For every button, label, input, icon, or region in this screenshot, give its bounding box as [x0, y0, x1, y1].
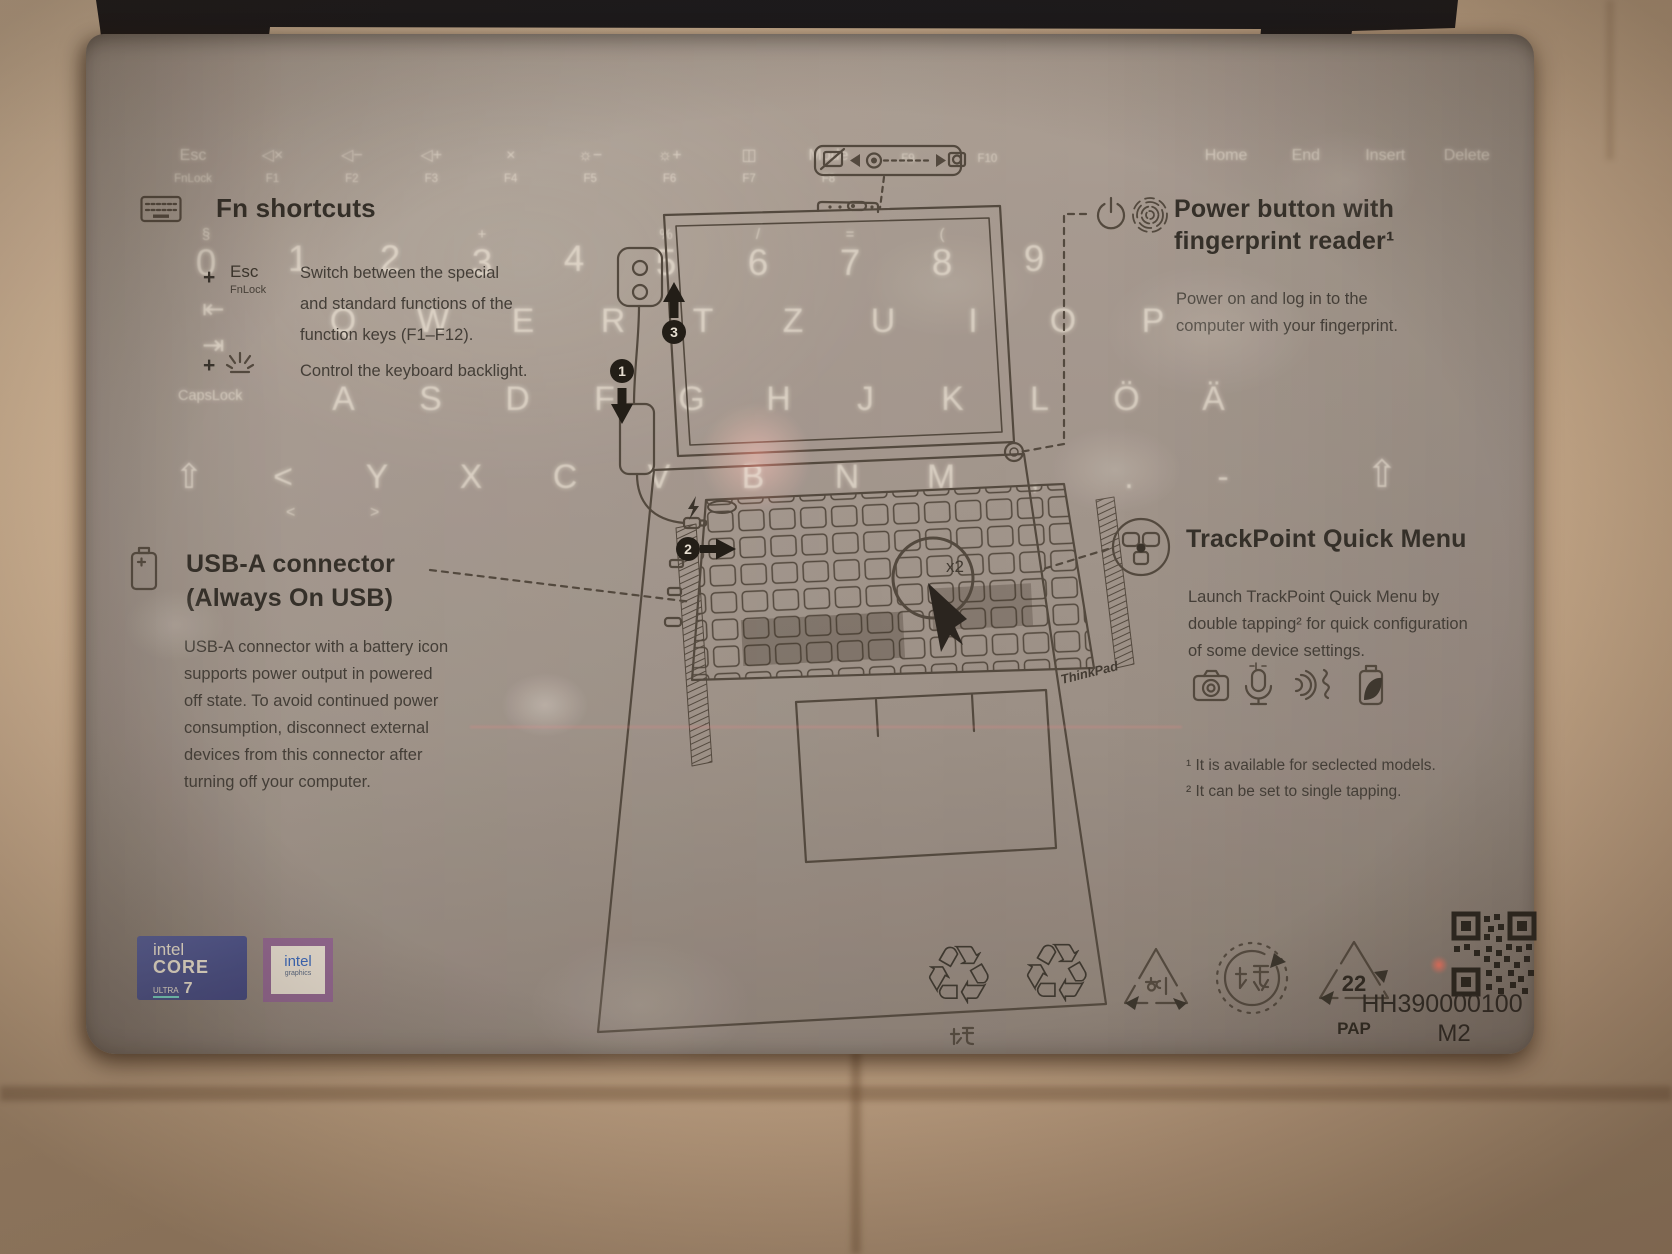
lightning-icon — [688, 496, 699, 520]
camera-on-icon — [949, 153, 965, 166]
side-port-usb-a — [665, 618, 681, 626]
camera-shutter-callout — [815, 146, 965, 208]
intel-core-ultra-badge: intel CORE ULTRA 7 — [137, 936, 247, 1000]
fingerprint-icon — [1133, 198, 1167, 232]
trackpoint-quick-menu-icon — [1108, 514, 1174, 580]
key-shadow-patch — [741, 612, 905, 666]
arrow-down-icon — [611, 388, 633, 424]
power-title: Power button with fingerprint reader¹ — [1174, 193, 1395, 257]
printed-content-layer: x2 ThinkPad — [0, 0, 1672, 1254]
fn-item1-text: Switch between the specialand standard f… — [300, 258, 513, 351]
step-2-number: 2 — [684, 541, 692, 557]
power-body: Power on and log in to thecomputer with … — [1176, 286, 1398, 340]
trackpoint-title: TrackPoint Quick Menu — [1186, 523, 1467, 555]
core-tier: ULTRA — [153, 986, 179, 998]
usba-callout-line — [430, 570, 692, 602]
graphics-label: graphics — [271, 970, 325, 977]
recycle-korean-paper-icon — [1117, 940, 1195, 1018]
revision-code: M2 — [1348, 1020, 1560, 1048]
plus-sign: + — [203, 266, 215, 290]
power-icon — [1098, 198, 1124, 228]
fn-shortcuts-title: Fn shortcuts — [216, 192, 376, 224]
recycle-japanese-paper-icon — [1212, 938, 1292, 1018]
trackpad — [796, 690, 1056, 862]
printed-guide-line — [470, 726, 1182, 728]
fn-item2-text: Control the keyboard backlight. — [300, 358, 527, 385]
power-callout-line — [1020, 214, 1086, 452]
step-1-number: 1 — [618, 363, 626, 379]
recycle-mobius-icon: ♲ — [922, 936, 996, 1018]
keyboard-backlight-icon — [226, 350, 254, 378]
side-port — [668, 588, 681, 595]
photo-scene: Esc FnLock ◁× F1 ◁− F2 ◁+ F3 × F4 ☼− F5 … — [0, 0, 1672, 1254]
wall-plug-icon — [618, 248, 662, 306]
fnlock-key-label: FnLock — [230, 284, 266, 296]
battery-icon — [128, 545, 160, 593]
footnotes: ¹ It is available for seclected models.²… — [1186, 753, 1436, 805]
camera-callout-line — [880, 177, 884, 208]
usba-title: USB-A connector (Always On USB) — [186, 547, 395, 615]
arrow-left-icon — [850, 154, 860, 167]
part-number: HH390000100 — [1336, 990, 1548, 1019]
core-line: CORE — [153, 958, 247, 976]
device-setting-icons — [1192, 662, 1408, 710]
double-tap-label: x2 — [946, 557, 964, 576]
intel-brand: intel — [153, 942, 247, 958]
usba-body: USB-A connector with a battery iconsuppo… — [184, 634, 448, 796]
battery-eco-icon — [1360, 666, 1382, 704]
step-3-number: 3 — [670, 324, 678, 340]
red-laser-dot — [1430, 956, 1448, 974]
microphone-icon — [1246, 663, 1271, 704]
recycle-mobius-icon: ♲ — [1020, 934, 1094, 1016]
camera-icon — [1194, 671, 1228, 700]
trackpoint-body: Launch TrackPoint Quick Menu bydouble ta… — [1188, 584, 1468, 665]
intel-graphics-badge: intel graphics — [263, 938, 333, 1002]
power-fingerprint-icons — [1092, 194, 1176, 236]
intel-brand: intel — [271, 953, 325, 970]
keyboard-icon — [140, 194, 182, 224]
camera-off-icon — [821, 149, 844, 169]
red-light-reflection — [698, 404, 814, 512]
recycle-cn-caption — [950, 1026, 976, 1048]
power-button-marker — [1005, 443, 1023, 461]
core-number: 7 — [184, 980, 193, 998]
plus-sign: + — [203, 354, 215, 378]
volume-icon — [1296, 670, 1329, 699]
qr-code — [1452, 912, 1536, 996]
arrow-right-icon — [936, 154, 946, 167]
esc-key-label: Esc — [230, 262, 258, 282]
